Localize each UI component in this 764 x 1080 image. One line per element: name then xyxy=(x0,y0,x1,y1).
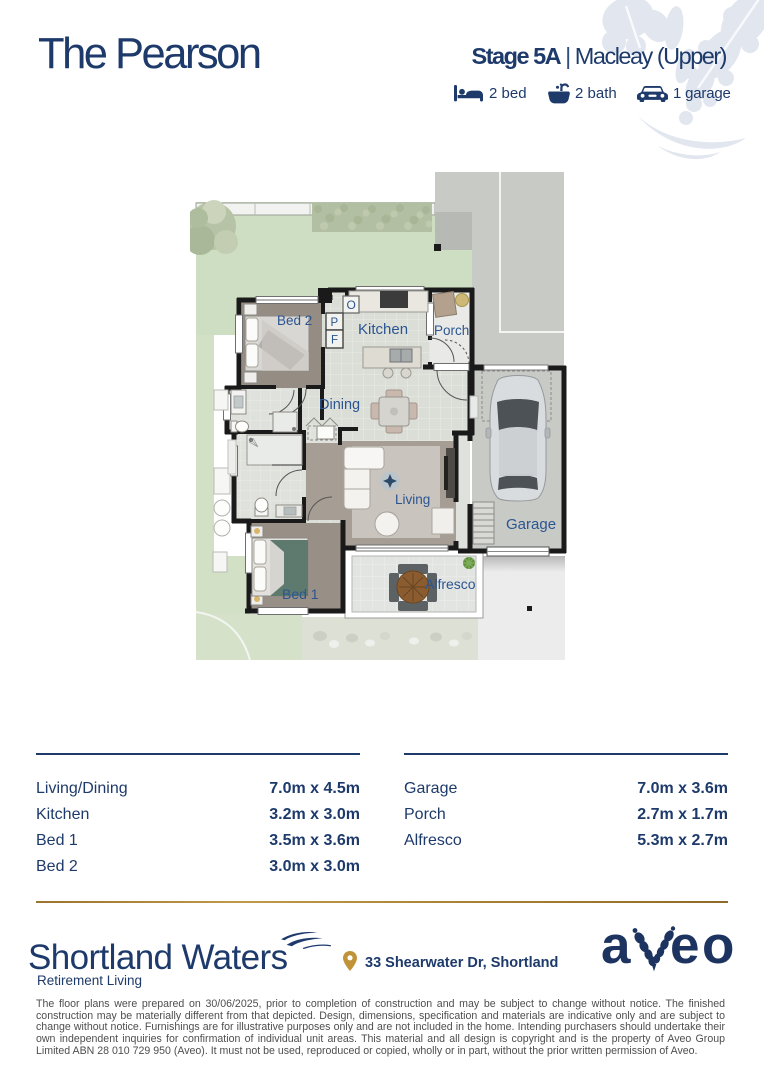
svg-text:Garage: Garage xyxy=(506,516,556,533)
svg-text:Kitchen: Kitchen xyxy=(358,321,408,338)
svg-text:Bed 1: Bed 1 xyxy=(282,586,319,602)
svg-text:o: o xyxy=(702,917,733,975)
svg-text:P: P xyxy=(331,317,339,329)
svg-text:a: a xyxy=(601,917,631,975)
svg-text:O: O xyxy=(347,298,356,312)
svg-text:Living: Living xyxy=(395,492,430,507)
svg-text:e: e xyxy=(670,917,699,975)
svg-text:Dining: Dining xyxy=(319,397,360,413)
svg-text:F: F xyxy=(331,335,338,347)
svg-text:Alfresco: Alfresco xyxy=(425,576,476,592)
svg-text:Bed 2: Bed 2 xyxy=(277,313,312,328)
svg-text:Porch: Porch xyxy=(434,323,469,338)
